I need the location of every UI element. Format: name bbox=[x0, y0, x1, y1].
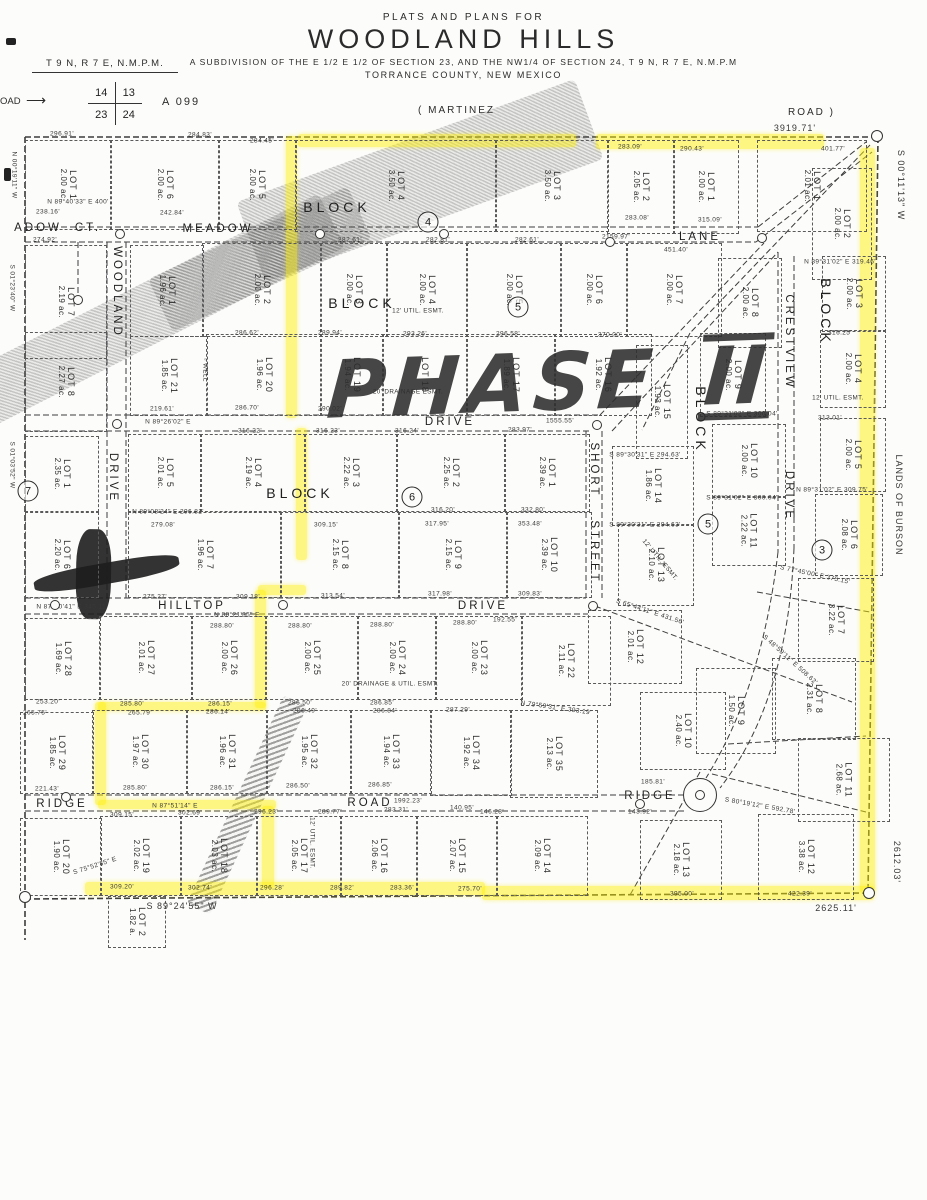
lot-number: LOT 5 bbox=[165, 457, 175, 489]
lot-number: LOT 21 bbox=[169, 358, 179, 394]
lot-acreage: 2.00 ac. bbox=[664, 274, 674, 306]
lot-acreage: 2.18 ac. bbox=[671, 842, 681, 878]
street-label: SHORT bbox=[588, 442, 600, 497]
lot-label: LOT 132.18 ac. bbox=[671, 842, 691, 878]
lot-number: LOT 4 bbox=[253, 457, 263, 489]
lot-number: LOT 9 bbox=[736, 695, 746, 727]
lot-number: LOT 2 bbox=[262, 274, 272, 306]
lot-acreage: 2.00 ac. bbox=[739, 443, 749, 479]
lot-parcel: LOT 33.50 ac. bbox=[495, 140, 609, 232]
lot-label: LOT 201.90 ac. bbox=[51, 839, 71, 875]
survey-point bbox=[315, 229, 325, 239]
lot-acreage: 2.68 ac. bbox=[834, 762, 844, 797]
lot-acreage: 2.22 ac. bbox=[341, 457, 351, 489]
dimension-label: 238.16' bbox=[36, 209, 60, 216]
dimension-label: 286.14' bbox=[206, 709, 230, 716]
lot-number: LOT 12 bbox=[635, 629, 645, 665]
lot-number: LOT 29 bbox=[57, 735, 67, 771]
lot-number: LOT 7 bbox=[836, 604, 846, 636]
dimension-label: S 01°23'40" W bbox=[9, 264, 16, 311]
dimension-label: S 01°03'52" W bbox=[9, 441, 16, 488]
lot-acreage: 2.00 ac. bbox=[155, 169, 165, 201]
lot-label: LOT 192.02 ac. bbox=[131, 838, 151, 874]
lot-label: LOT 222.11 ac. bbox=[556, 643, 576, 679]
lot-parcel: LOT 73.22 ac. bbox=[798, 578, 874, 662]
lot-label: LOT 33.50 ac. bbox=[542, 170, 562, 202]
lot-acreage: 1.50 ac. bbox=[726, 695, 736, 727]
lot-parcel: LOT 112.68 ac. bbox=[798, 738, 890, 822]
survey-point bbox=[278, 600, 288, 610]
dimension-label: 288.80' bbox=[288, 623, 312, 630]
lot-number: LOT 30 bbox=[140, 734, 150, 770]
lot-number: LOT 10 bbox=[749, 443, 759, 479]
dimension-label: 265.75' bbox=[23, 710, 47, 717]
lot-label: LOT 123.38 ac. bbox=[796, 839, 816, 875]
lot-number: LOT 2 bbox=[137, 907, 147, 937]
lot-label: LOT 52.00 ac. bbox=[248, 169, 268, 201]
lot-acreage: 2.19 ac. bbox=[243, 457, 253, 489]
lot-acreage: 2.00 ac. bbox=[832, 208, 842, 240]
lot-label: LOT 301.97 ac. bbox=[130, 734, 150, 770]
lot-acreage: 3.38 ac. bbox=[796, 839, 806, 875]
boundary-label: 2612.03' bbox=[892, 841, 902, 883]
lot-parcel: LOT 22.00 ac. bbox=[202, 243, 322, 337]
street-label: WOODLAND bbox=[111, 246, 123, 338]
dimension-label: 286.84' bbox=[373, 708, 397, 715]
survey-point bbox=[112, 419, 122, 429]
lot-acreage: 3.50 ac. bbox=[386, 170, 396, 202]
dimension-label: 286.15' bbox=[208, 701, 232, 708]
lot-label: LOT 82.15 ac. bbox=[330, 539, 350, 571]
lot-parcel: LOT 91.50 ac. bbox=[696, 668, 776, 754]
dimension-label: 315.09' bbox=[698, 217, 722, 224]
lot-label: LOT 252.00 ac. bbox=[302, 640, 322, 676]
lot-number: LOT 9 bbox=[453, 539, 463, 571]
dimension-label: 282.61' bbox=[338, 237, 362, 244]
lot-label: LOT 232.00 ac. bbox=[469, 640, 489, 676]
lot-acreage: 2.00 ac. bbox=[584, 274, 594, 306]
lot-label: LOT 92.15 ac. bbox=[443, 539, 463, 571]
lot-number: LOT 6 bbox=[165, 169, 175, 201]
lot-label: LOT 311.96 ac. bbox=[217, 734, 237, 770]
lot-parcel: LOT 301.97 ac. bbox=[92, 710, 188, 794]
lot-label: LOT 22.25 ac. bbox=[441, 457, 461, 489]
dimension-label: 286.62' bbox=[235, 330, 259, 337]
lot-acreage: 2.00 ac. bbox=[302, 640, 312, 676]
lot-parcel: LOT 82.31 ac. bbox=[772, 658, 856, 740]
lot-acreage: 1.96 ac. bbox=[195, 539, 205, 571]
survey-point bbox=[73, 295, 83, 305]
lot-number: LOT 27 bbox=[146, 640, 156, 676]
lot-parcel: LOT 12.39 ac. bbox=[504, 434, 590, 512]
lot-number: LOT 26 bbox=[229, 640, 239, 676]
lot-parcel: LOT 42.00 ac. bbox=[386, 243, 468, 337]
boundary-label: 3919.71' bbox=[774, 123, 816, 133]
lot-parcel: LOT 112.22 ac. bbox=[712, 496, 786, 566]
block-number-circle: 5 bbox=[508, 297, 529, 318]
dimension-label: 279.08' bbox=[151, 522, 175, 529]
dimension-label: 286.85' bbox=[368, 782, 392, 789]
lot-parcel: LOT 52.00 ac. bbox=[820, 418, 886, 492]
lot-acreage: 1.85 ac. bbox=[159, 358, 169, 394]
lot-parcel: LOT 62.08 ac. bbox=[815, 494, 883, 576]
dimension-label: 219.61' bbox=[150, 406, 174, 413]
lot-number: LOT 15 bbox=[457, 838, 467, 874]
lot-acreage: 2.39 ac. bbox=[537, 457, 547, 489]
street-label: ADOW bbox=[14, 222, 62, 234]
lot-acreage: 3.50 ac. bbox=[542, 170, 552, 202]
lot-label: LOT 201.96 ac. bbox=[254, 357, 274, 393]
dimension-label: 302.69' bbox=[178, 810, 202, 817]
lot-parcel: LOT 321.95 ac. bbox=[266, 710, 352, 794]
lot-acreage: 1.86 ac. bbox=[643, 468, 653, 504]
boundary-label: S 89°24'55" W bbox=[146, 901, 217, 911]
lot-acreage: 2.13 ac. bbox=[544, 736, 554, 772]
lot-parcel: LOT 11.96 ac. bbox=[130, 245, 204, 337]
easement-note: 12' UTIL. ESMT. bbox=[309, 817, 316, 869]
lot-number: LOT 16 bbox=[379, 838, 389, 874]
lot-label: LOT 262.00 ac. bbox=[219, 640, 239, 676]
dimension-label: 242.84' bbox=[160, 210, 184, 217]
lot-acreage: 1.94 ac. bbox=[381, 734, 391, 770]
dimension-label: 316.25' bbox=[828, 330, 852, 337]
lot-acreage: 3.22 ac. bbox=[826, 604, 836, 636]
dimension-label: 265.79' bbox=[128, 710, 152, 717]
lot-acreage: 1.90 ac. bbox=[51, 839, 61, 875]
street-label: CRESTVIEW bbox=[783, 294, 795, 389]
lot-parcel: LOT 232.00 ac. bbox=[435, 616, 523, 700]
lot-number: LOT 4 bbox=[396, 170, 406, 202]
lot-parcel: LOT 62.00 ac. bbox=[560, 243, 628, 337]
lot-acreage: 1.82 a. bbox=[127, 907, 137, 937]
lot-number: LOT 3 bbox=[854, 278, 864, 310]
dimension-label: 302.74' bbox=[188, 885, 212, 892]
lot-acreage: 2.20 ac. bbox=[52, 539, 62, 571]
lot-number: LOT 24 bbox=[397, 640, 407, 676]
lot-number: LOT 8 bbox=[814, 683, 824, 715]
lot-label: LOT 82.00 ac. bbox=[740, 287, 760, 319]
lot-acreage: 2.03 ac. bbox=[209, 838, 219, 874]
dimension-label: 290.43' bbox=[680, 146, 704, 153]
easement-note: 12' UTIL. ESMT. bbox=[392, 308, 444, 315]
lot-number: LOT 5 bbox=[853, 439, 863, 471]
lot-acreage: 2.07 ac. bbox=[447, 838, 457, 874]
lot-acreage: 2.11 ac. bbox=[556, 643, 566, 679]
lot-number: LOT 2 bbox=[451, 457, 461, 489]
lot-number: LOT 6 bbox=[594, 274, 604, 306]
dimension-label: 289.77' bbox=[318, 809, 342, 816]
dimension-label: N 89°08'24" E 296.81' bbox=[132, 509, 204, 516]
lot-label: LOT 43.50 ac. bbox=[386, 170, 406, 202]
lot-parcel: LOT 52.00 ac. bbox=[218, 140, 297, 230]
lot-parcel: LOT 352.13 ac. bbox=[510, 710, 598, 798]
dimension-label: N 89°40'33" E 400' bbox=[47, 199, 109, 206]
lot-number: LOT 11 bbox=[844, 762, 854, 797]
dimension-label: 140.95' bbox=[450, 805, 474, 812]
lot-label: LOT 162.06 ac. bbox=[369, 838, 389, 874]
dimension-label: 275.70' bbox=[458, 886, 482, 893]
street-label: DRIVE bbox=[107, 453, 119, 503]
lot-acreage: 1.92 ac. bbox=[461, 735, 471, 771]
boundary-label: 2625.11' bbox=[815, 903, 857, 913]
lot-label: LOT 22.05 ac. bbox=[631, 171, 651, 203]
lot-parcel: LOT 152.07 ac. bbox=[416, 816, 498, 896]
block-number-circle: 3 bbox=[812, 540, 833, 561]
lot-label: LOT 52.01 ac. bbox=[155, 457, 175, 489]
dimension-label: 285.80' bbox=[120, 701, 144, 708]
lot-number: LOT 34 bbox=[471, 735, 481, 771]
boundary-label: LANDS OF BURSON bbox=[894, 454, 904, 555]
lot-acreage: 2.01 ac. bbox=[155, 457, 165, 489]
lot-number: LOT 31 bbox=[227, 734, 237, 770]
lot-number: LOT 13 bbox=[681, 842, 691, 878]
survey-point bbox=[863, 887, 875, 899]
lot-acreage: 2.09 ac. bbox=[532, 838, 542, 874]
dimension-label: 284.83' bbox=[188, 132, 212, 139]
lot-label: LOT 211.85 ac. bbox=[159, 358, 179, 394]
lot-label: LOT 12.35 ac. bbox=[52, 458, 72, 490]
lot-acreage: 2.01 ac. bbox=[625, 629, 635, 665]
lot-number: LOT 2 bbox=[842, 208, 852, 240]
lot-parcel: LOT 142.09 ac. bbox=[496, 816, 588, 896]
lot-number: LOT 20 bbox=[61, 839, 71, 875]
lot-parcel: LOT 82.27 ac. bbox=[25, 332, 107, 432]
lot-label: LOT 42.00 ac. bbox=[843, 353, 863, 385]
survey-point bbox=[588, 601, 598, 611]
lot-label: LOT 73.22 ac. bbox=[826, 604, 846, 636]
lot-acreage: 2.08 ac. bbox=[839, 519, 849, 551]
dimension-label: 313.01' bbox=[818, 415, 842, 422]
lot-parcel: LOT 52.00 ac. bbox=[466, 243, 562, 337]
dimension-label: 286.70' bbox=[235, 405, 259, 412]
lot-acreage: 2.19 ac. bbox=[56, 286, 66, 318]
lot-label: LOT 72.00 ac. bbox=[664, 274, 684, 306]
lot-number: LOT 12 bbox=[806, 839, 816, 875]
lot-number: LOT 7 bbox=[674, 274, 684, 306]
lot-label: LOT 21.82 a. bbox=[127, 907, 147, 937]
street-label: HILLTOP bbox=[158, 600, 226, 612]
lot-acreage: 2.15 ac. bbox=[330, 539, 340, 571]
survey-point bbox=[695, 790, 705, 800]
lot-number: LOT 14 bbox=[542, 838, 552, 874]
survey-point bbox=[757, 233, 767, 243]
dimension-label: 253.20' bbox=[36, 699, 60, 706]
dimension-label: 451.40' bbox=[664, 247, 688, 254]
dimension-label: 288.80' bbox=[210, 623, 234, 630]
street-label: LANE bbox=[679, 231, 721, 243]
dimension-label: 283.36' bbox=[390, 885, 414, 892]
survey-point bbox=[19, 891, 31, 903]
lot-number: LOT 1 bbox=[69, 169, 79, 201]
lot-label: LOT 341.92 ac. bbox=[461, 735, 481, 771]
dimension-label: 282.61' bbox=[515, 237, 539, 244]
dimension-label: 286.85' bbox=[370, 700, 394, 707]
lot-label: LOT 42.19 ac. bbox=[243, 457, 263, 489]
lot-parcel: LOT 201.96 ac. bbox=[206, 334, 322, 416]
lot-parcel: LOT 291.85 ac. bbox=[20, 712, 94, 794]
lot-parcel: LOT 72.00 ac. bbox=[626, 243, 722, 337]
dimension-label: 401.77' bbox=[821, 146, 845, 153]
lot-acreage: 2.01 ac. bbox=[136, 640, 146, 676]
lot-number: LOT 18 bbox=[219, 838, 229, 874]
lot-acreage: 1.85 ac. bbox=[47, 735, 57, 771]
dimension-label: 185.81' bbox=[641, 779, 665, 786]
lot-parcel: LOT 201.90 ac. bbox=[20, 818, 102, 896]
lot-label: LOT 122.01 ac. bbox=[625, 629, 645, 665]
lot-number: LOT 1 bbox=[547, 457, 557, 489]
lot-number: LOT 8 bbox=[66, 366, 76, 398]
dimension-label: N 00°19'11" W bbox=[11, 152, 18, 199]
easement-note: 20' DRAINAGE & UTIL. ESMT. bbox=[342, 681, 439, 688]
lot-label: LOT 52.00 ac. bbox=[843, 439, 863, 471]
dimension-label: 1992.23' bbox=[394, 798, 422, 805]
lot-number: LOT 1 bbox=[167, 275, 177, 307]
lot-parcel: LOT 102.00 ac. bbox=[712, 424, 786, 498]
lot-label: LOT 242.00 ac. bbox=[387, 640, 407, 676]
lot-parcel: LOT 12.35 ac. bbox=[25, 436, 99, 512]
survey-point bbox=[635, 799, 645, 809]
dimension-label: 395.00' bbox=[670, 891, 694, 898]
dimension-label: 309.15' bbox=[314, 522, 338, 529]
lot-acreage: 2.00 ac. bbox=[843, 439, 853, 471]
dimension-label: 296.28' bbox=[260, 885, 284, 892]
lot-label: LOT 102.39 ac. bbox=[539, 537, 559, 573]
lot-number: LOT 17 bbox=[299, 838, 309, 874]
block-word: BLOCK bbox=[328, 295, 395, 311]
lot-number: LOT 10 bbox=[683, 713, 693, 749]
lot-acreage: 2.02 ac. bbox=[131, 838, 141, 874]
lot-number: LOT 10 bbox=[549, 537, 559, 573]
lot-acreage: 2.15 ac. bbox=[443, 539, 453, 571]
lot-acreage: 1.69 ac. bbox=[53, 641, 63, 677]
lot-label: LOT 82.27 ac. bbox=[56, 366, 76, 398]
lot-acreage: 2.00 ac. bbox=[843, 353, 853, 385]
street-label: DRIVE bbox=[458, 600, 508, 612]
lot-acreage: 1.96 ac. bbox=[254, 357, 264, 393]
dimension-label: 289.94' bbox=[318, 330, 342, 337]
lot-label: LOT 141.86 ac. bbox=[643, 468, 663, 504]
lot-number: LOT 19 bbox=[141, 838, 151, 874]
lot-acreage: 2.00 ac. bbox=[740, 287, 750, 319]
lot-acreage: 1.97 ac. bbox=[130, 734, 140, 770]
block-number-circle: 7 bbox=[18, 481, 39, 502]
street-label: MEADOW bbox=[182, 223, 253, 235]
dimension-label: 143.92' bbox=[628, 809, 652, 816]
dimension-label: S 89°30'31" E 294.63' bbox=[609, 452, 680, 459]
lot-label: LOT 331.94 ac. bbox=[381, 734, 401, 770]
dimension-label: S 89°30'31" E 294.63' bbox=[609, 522, 680, 529]
lot-number: LOT 6 bbox=[62, 539, 72, 571]
lot-number: LOT 23 bbox=[479, 640, 489, 676]
survey-point bbox=[115, 229, 125, 239]
lot-label: LOT 12.39 ac. bbox=[537, 457, 557, 489]
lot-acreage: 2.00 ac. bbox=[219, 640, 229, 676]
survey-point bbox=[61, 792, 71, 802]
lot-label: LOT 22.00 ac. bbox=[252, 274, 272, 306]
lot-number: LOT 3 bbox=[552, 170, 562, 202]
survey-point bbox=[871, 130, 883, 142]
lot-label: LOT 42.00 ac. bbox=[417, 274, 437, 306]
plat-map: LOT 12.00 ac.LOT 62.00 ac.LOT 52.00 ac.L… bbox=[0, 0, 927, 1200]
street-label: STREET bbox=[588, 520, 600, 583]
dimension-label: 285.80' bbox=[123, 785, 147, 792]
lot-number: LOT 35 bbox=[554, 736, 564, 772]
phase-annotation: PHASEII bbox=[324, 328, 775, 436]
lot-label: LOT 172.05 ac. bbox=[289, 838, 309, 874]
lot-parcel: LOT 52.01 ac. bbox=[128, 434, 202, 512]
dimension-label: 309.15' bbox=[110, 812, 134, 819]
street-label: DRIVE bbox=[783, 471, 795, 521]
dimension-label: 146.28' bbox=[480, 809, 504, 816]
dimension-label: 309.20' bbox=[110, 884, 134, 891]
lot-parcel: LOT 211.85 ac. bbox=[130, 336, 208, 416]
dimension-label: 309.83' bbox=[518, 591, 542, 598]
dimension-label: 296.91' bbox=[50, 131, 74, 138]
lot-acreage: 1.96 ac. bbox=[157, 275, 167, 307]
lot-number: LOT 8 bbox=[340, 539, 350, 571]
lot-parcel: LOT 341.92 ac. bbox=[430, 710, 512, 796]
lot-label: LOT 281.69 ac. bbox=[53, 641, 73, 677]
dimension-label: 284.45' bbox=[250, 138, 274, 145]
lot-label: LOT 82.31 ac. bbox=[804, 683, 824, 715]
easement-note: ▫ WELL bbox=[202, 358, 209, 382]
lot-acreage: 2.00 ac. bbox=[417, 274, 427, 306]
easement-note: 12' UTIL. ESMT. bbox=[812, 395, 864, 402]
lot-acreage: 2.05 ac. bbox=[631, 171, 641, 203]
dimension-label: 309.18' bbox=[236, 594, 260, 601]
lot-label: LOT 32.22 ac. bbox=[341, 457, 361, 489]
lot-acreage: 2.00 ac. bbox=[844, 278, 854, 310]
phase-word: PHASE bbox=[324, 332, 661, 436]
lot-parcel: LOT 311.96 ac. bbox=[186, 710, 268, 794]
dimension-label: 286.50' bbox=[286, 783, 310, 790]
dimension-label: 332.80' bbox=[521, 507, 545, 514]
lot-acreage: 2.00 ac. bbox=[248, 169, 258, 201]
lot-parcel: LOT 43.50 ac. bbox=[295, 140, 497, 232]
dimension-label: 288.80' bbox=[370, 622, 394, 629]
dimension-label: 296.23' bbox=[254, 809, 278, 816]
lot-label: LOT 142.09 ac. bbox=[532, 838, 552, 874]
lot-number: LOT 4 bbox=[853, 353, 863, 385]
lot-label: LOT 291.85 ac. bbox=[47, 735, 67, 771]
lot-parcel: LOT 132.10 ac. bbox=[618, 524, 694, 606]
lot-acreage: 1.96 ac. bbox=[217, 734, 227, 770]
dimension-label: 286.15' bbox=[210, 785, 234, 792]
lot-parcel: LOT 123.38 ac. bbox=[758, 814, 854, 900]
lot-label: LOT 71.96 ac. bbox=[195, 539, 215, 571]
lot-label: LOT 62.20 ac. bbox=[52, 539, 72, 571]
dimension-label: 422.39' bbox=[788, 891, 812, 898]
dimension-label: N 89°31'02" E 309.75' bbox=[796, 487, 868, 494]
dimension-label: 221.43' bbox=[35, 786, 59, 793]
lot-number: LOT 5 bbox=[258, 169, 268, 201]
block-number-circle: 4 bbox=[418, 212, 439, 233]
dimension-label: 286.49' bbox=[293, 708, 317, 715]
lot-label: LOT 62.00 ac. bbox=[584, 274, 604, 306]
dimension-label: N 89°31'02" E 319.46' bbox=[804, 259, 876, 266]
block-number-circle: 5 bbox=[698, 514, 719, 535]
lot-label: LOT 102.00 ac. bbox=[739, 443, 759, 479]
lot-acreage: 2.40 ac. bbox=[673, 713, 683, 749]
lot-number: LOT 4 bbox=[427, 274, 437, 306]
lot-parcel: LOT 272.01 ac. bbox=[99, 616, 193, 700]
survey-point bbox=[439, 229, 449, 239]
lot-acreage: 2.01 ac. bbox=[802, 170, 812, 202]
lot-parcel: LOT 82.15 ac. bbox=[280, 512, 400, 598]
lot-label: LOT 321.95 ac. bbox=[299, 734, 319, 770]
dimension-label: 283.09' bbox=[618, 144, 642, 151]
lot-label: LOT 62.08 ac. bbox=[839, 519, 859, 551]
